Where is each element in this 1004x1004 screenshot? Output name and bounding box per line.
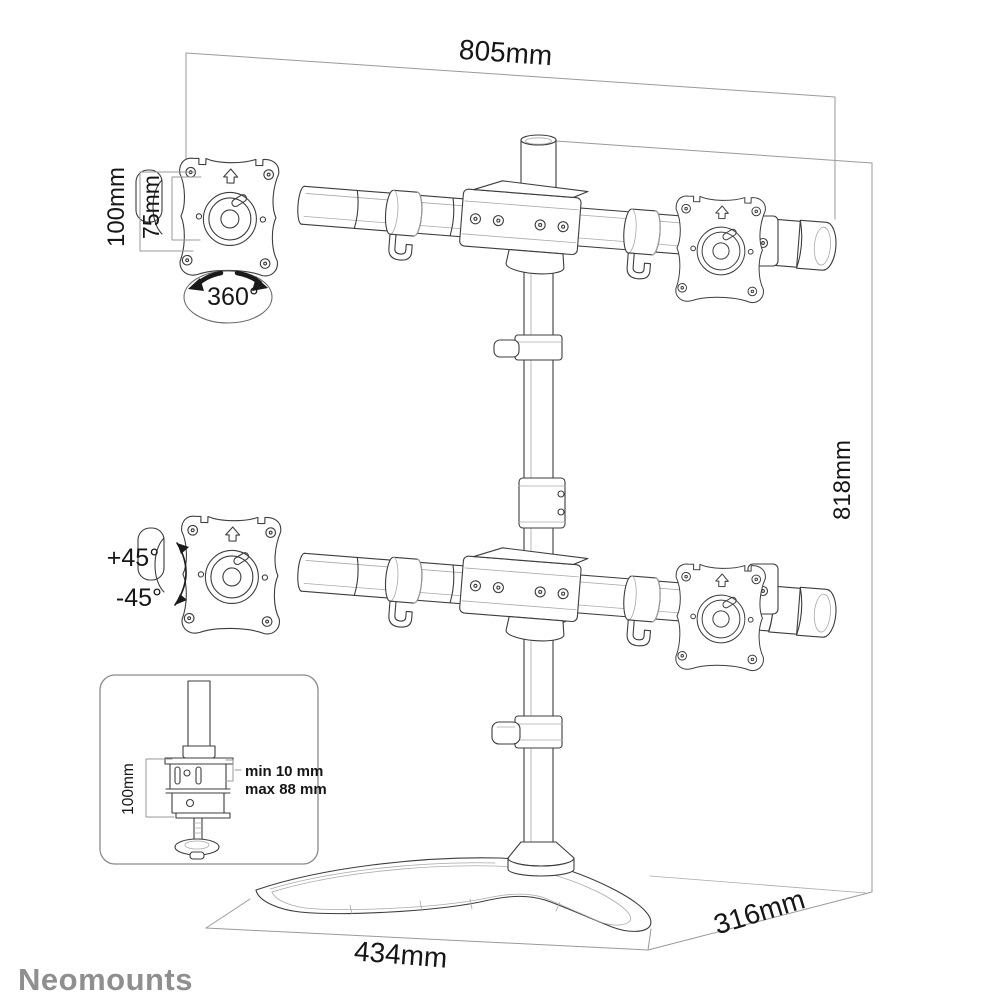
dim-base-depth-label: 316mm (710, 883, 808, 940)
tilt-down-label: -45° (116, 584, 162, 612)
clamp-max-label: max 88 mm (245, 781, 327, 798)
clamp-min-label: min 10 mm (245, 763, 323, 780)
base-plate (256, 858, 651, 932)
swivel-annotation: 360° (184, 271, 272, 323)
dim-vesa-outer-label: 100mm (103, 167, 130, 247)
technical-drawing-page: 360° +45° -45° 100mm min 10 mm max 88 mm (0, 0, 1004, 1004)
dim-base-width-label: 434mm (353, 935, 449, 973)
vesa-plate-bottom-left (180, 516, 281, 635)
swivel-label: 360° (207, 283, 259, 311)
vesa-plate-top-right (674, 196, 766, 304)
dim-top-width-label: 805mm (458, 34, 553, 71)
tilt-up-label: +45° (107, 544, 159, 572)
brand-logo: Neomounts (18, 962, 193, 997)
quad-monitor-stand-diagram: 360° +45° -45° 100mm min 10 mm max 88 mm (0, 0, 1004, 1004)
dim-height-label: 818mm (829, 440, 856, 520)
clamp-height-label: 100mm (120, 763, 137, 815)
vesa-plates (136, 158, 778, 671)
dim-vesa-inner-label: 75mm (138, 175, 164, 239)
vesa-plate-bottom-right (674, 564, 766, 672)
clamp-inset: 100mm min 10 mm max 88 mm (100, 675, 327, 864)
vesa-plate-top-left (178, 158, 279, 277)
